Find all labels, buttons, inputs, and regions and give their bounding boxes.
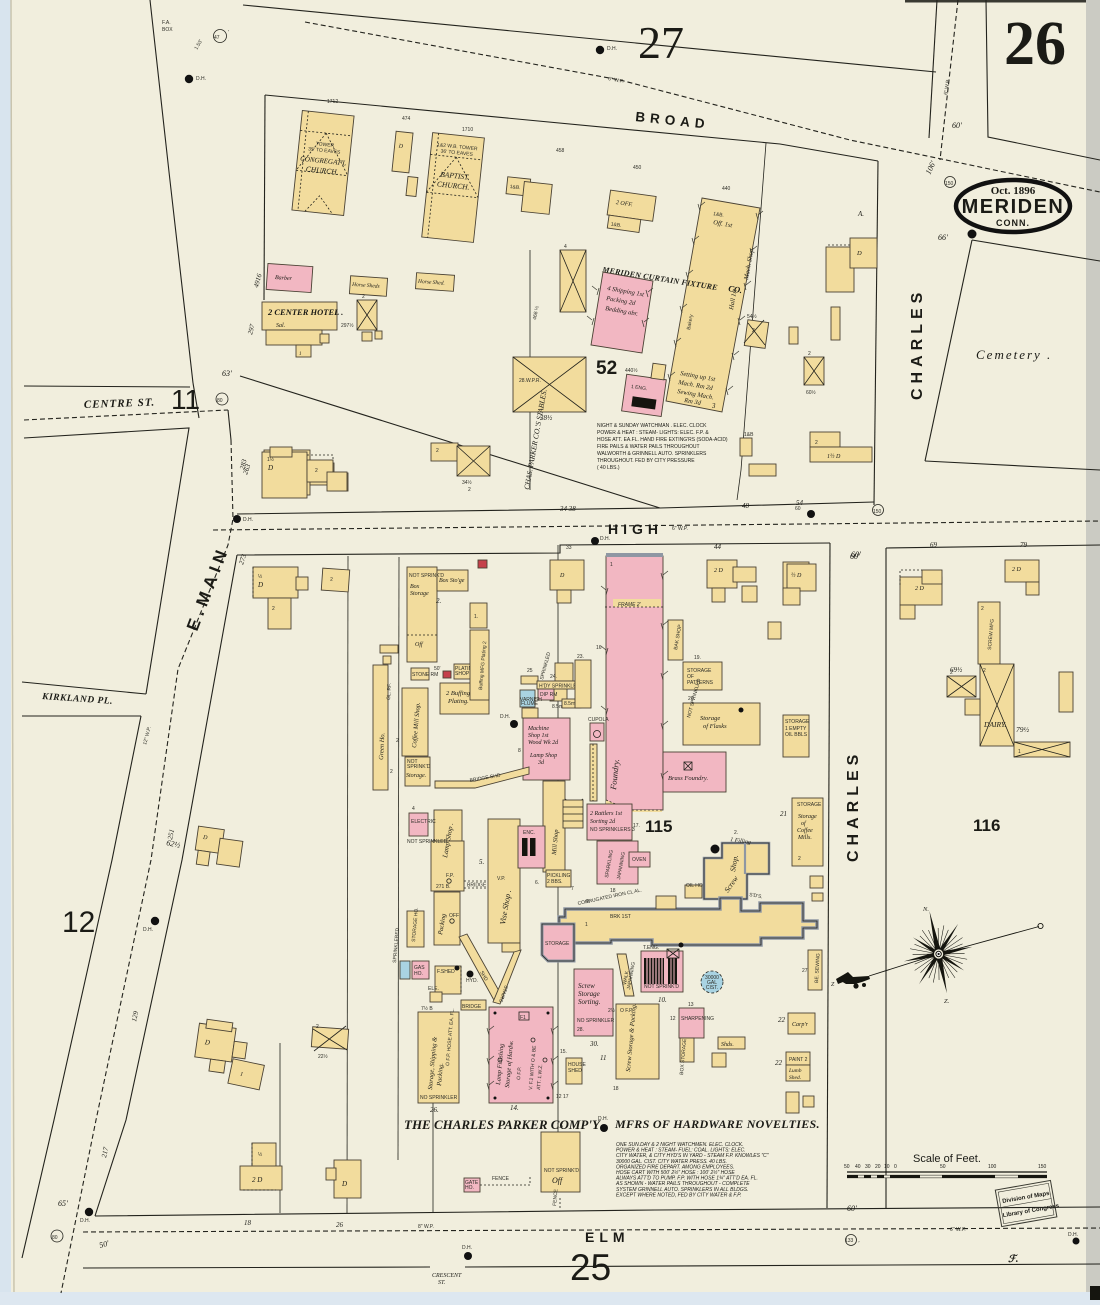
- svg-text:3d: 3d: [537, 760, 545, 766]
- svg-text:THROUGHOUT. FED BY CITY PRESSU: THROUGHOUT. FED BY CITY PRESSURE: [597, 458, 695, 464]
- svg-text:297½: 297½: [341, 322, 354, 329]
- svg-text:D.H.: D.H.: [607, 46, 617, 52]
- svg-text:18: 18: [244, 1219, 252, 1227]
- svg-text:19.: 19.: [694, 655, 701, 661]
- svg-text:Lumb: Lumb: [788, 1068, 802, 1074]
- svg-text:SHARPENING: SHARPENING: [681, 1016, 714, 1022]
- svg-text:Cemetery .: Cemetery .: [976, 347, 1052, 362]
- svg-text:50': 50': [434, 666, 441, 672]
- svg-text:FIRE PAILS & WATER PAILS THROU: FIRE PAILS & WATER PAILS THROUGHOUT: [597, 444, 700, 450]
- svg-text:1: 1: [610, 562, 613, 568]
- svg-text:2 Rattlers 1st: 2 Rattlers 1st: [590, 811, 622, 817]
- svg-text:D.H.: D.H.: [462, 1245, 472, 1251]
- svg-text:14.: 14.: [510, 1104, 519, 1112]
- svg-text:Storage: Storage: [410, 591, 429, 597]
- svg-text:1: 1: [1018, 749, 1021, 755]
- svg-text:Lamp Shop: Lamp Shop: [529, 753, 557, 759]
- svg-text:52: 52: [596, 358, 617, 379]
- svg-text:8: 8: [518, 748, 521, 754]
- svg-text:DIP RM: DIP RM: [540, 692, 557, 698]
- svg-text:44: 44: [714, 543, 722, 551]
- svg-text:Storage: Storage: [700, 715, 720, 722]
- svg-text:A.: A.: [857, 210, 864, 218]
- svg-text:21: 21: [780, 810, 787, 818]
- svg-text:MFRS OF HARDWARE NOVELTIES.: MFRS OF HARDWARE NOVELTIES.: [614, 1117, 820, 1131]
- svg-text:47: 47: [214, 35, 220, 41]
- svg-text:Storage: Storage: [578, 990, 600, 998]
- svg-text:BRIDGE: BRIDGE: [467, 883, 487, 889]
- svg-text:25: 25: [570, 1247, 611, 1288]
- svg-text:F.SHED: F.SHED: [437, 969, 455, 975]
- svg-text:D: D: [257, 581, 263, 589]
- svg-text:HO.: HO.: [414, 971, 423, 977]
- svg-text:0: 0: [894, 1164, 897, 1170]
- svg-text:40: 40: [855, 1164, 861, 1170]
- svg-text:CIST.: CIST.: [706, 985, 718, 991]
- svg-text:8.5m: 8.5m: [552, 704, 563, 710]
- svg-text:1712: 1712: [327, 99, 338, 105]
- svg-text:16: 16: [596, 645, 602, 651]
- svg-text:EXCEPT WHERE NOTED, FED BY CIT: EXCEPT WHERE NOTED, FED BY CITY WATER & …: [616, 1192, 741, 1198]
- svg-text:SPRINK'D: SPRINK'D: [407, 764, 431, 770]
- svg-text:Wood Wk 2d: Wood Wk 2d: [528, 740, 559, 746]
- svg-text:( 40 LBS.): ( 40 LBS.): [597, 465, 620, 471]
- svg-text:33: 33: [566, 545, 572, 551]
- svg-text:HIGH: HIGH: [608, 521, 663, 537]
- svg-text:30: 30: [865, 1164, 871, 1170]
- svg-text:D.H.: D.H.: [80, 1218, 90, 1224]
- svg-text:Shop 1st: Shop 1st: [528, 733, 549, 739]
- svg-text:7: 7: [571, 886, 574, 892]
- svg-text:11: 11: [171, 384, 200, 415]
- svg-text:15.: 15.: [560, 1049, 567, 1055]
- svg-text:Box: Box: [410, 584, 420, 590]
- svg-text:2½: 2½: [608, 1007, 616, 1014]
- svg-text:1: 1: [299, 352, 302, 357]
- svg-text:CONN.: CONN.: [996, 218, 1030, 228]
- svg-text:2: 2: [272, 606, 275, 612]
- svg-text:F1: F1: [520, 1015, 526, 1021]
- svg-text:Sal.: Sal.: [276, 323, 285, 329]
- svg-text:2 D: 2 D: [915, 586, 925, 592]
- svg-text:440: 440: [722, 186, 731, 192]
- svg-text:458: 458: [556, 148, 565, 154]
- svg-text:NO SPRINKLER: NO SPRINKLER: [577, 1018, 615, 1024]
- svg-text:D: D: [203, 1038, 210, 1047]
- svg-text:25: 25: [527, 668, 533, 674]
- svg-text:2: 2: [981, 606, 984, 612]
- svg-text:10: 10: [884, 1164, 890, 1170]
- svg-text:D.H.: D.H.: [243, 517, 253, 523]
- svg-text:150: 150: [873, 509, 882, 515]
- svg-text:23.: 23.: [577, 654, 584, 660]
- svg-text:': ': [228, 30, 229, 36]
- svg-text:Brass Foundry.: Brass Foundry.: [668, 775, 708, 782]
- svg-text:28.W.P.R.: 28.W.P.R.: [519, 378, 541, 384]
- svg-text:Green Ho.: Green Ho.: [378, 732, 386, 760]
- svg-text:FENCE: FENCE: [492, 1176, 510, 1182]
- svg-text:20: 20: [875, 1164, 881, 1170]
- svg-text:D: D: [267, 464, 273, 472]
- svg-text:2: 2: [316, 1024, 319, 1030]
- svg-text:7½ B: 7½ B: [421, 1005, 433, 1012]
- svg-text:BRIDGE: BRIDGE: [462, 1004, 482, 1010]
- svg-text:65': 65': [58, 1199, 68, 1208]
- svg-text:T.ENG.: T.ENG.: [643, 945, 659, 951]
- svg-text:26: 26: [1004, 10, 1066, 78]
- svg-text:17.: 17.: [633, 823, 640, 829]
- svg-text:NO SPRINKLER: NO SPRINKLER: [420, 1095, 458, 1101]
- svg-text:60½: 60½: [806, 389, 817, 396]
- svg-text:D.H.: D.H.: [500, 714, 510, 720]
- svg-text:15: 15: [556, 1122, 564, 1130]
- svg-text:1½: 1½: [267, 456, 275, 463]
- svg-text:FRAME 2': FRAME 2': [618, 602, 642, 608]
- svg-text:O F.P.: O F.P.: [620, 1008, 633, 1014]
- svg-text:150: 150: [945, 181, 954, 187]
- svg-text:2 D: 2 D: [252, 1176, 262, 1184]
- svg-text:22½: 22½: [318, 1053, 329, 1060]
- svg-text:8" W.P.: 8" W.P.: [418, 1224, 434, 1230]
- svg-text:D.H.: D.H.: [143, 927, 153, 933]
- svg-text:2 D: 2 D: [1012, 567, 1022, 573]
- svg-text:116: 116: [973, 816, 1000, 835]
- svg-text:O F.P.: O F.P.: [516, 1066, 523, 1080]
- svg-text:4: 4: [412, 806, 415, 812]
- svg-text:12: 12: [670, 1016, 676, 1022]
- svg-text:133: 133: [845, 1238, 854, 1244]
- svg-text:2: 2: [396, 738, 399, 744]
- svg-text:1.: 1.: [474, 614, 478, 620]
- svg-text:V.P.: V.P.: [497, 876, 505, 882]
- svg-text:Plating.: Plating.: [447, 698, 469, 705]
- svg-text:6" W.P.: 6" W.P.: [950, 1227, 966, 1233]
- svg-text:STORAGE: STORAGE: [797, 802, 822, 808]
- svg-text:NO SPRINKLERS 3: NO SPRINKLERS 3: [590, 827, 635, 833]
- svg-text:NIGHT & SUNDAY WATCHMAN . ELEC: NIGHT & SUNDAY WATCHMAN . ELEC. CLOCK: [597, 423, 707, 429]
- svg-text:450: 450: [633, 165, 642, 171]
- svg-text:F.A.: F.A.: [162, 20, 171, 26]
- svg-text:HO.: HO.: [465, 1185, 474, 1191]
- svg-text:ENC.: ENC.: [523, 830, 535, 836]
- svg-text:2 CENTER HOTEL .: 2 CENTER HOTEL .: [267, 307, 343, 317]
- svg-text:of Flasks: of Flasks: [703, 723, 727, 730]
- svg-text:4: 4: [564, 244, 567, 250]
- svg-text:27: 27: [638, 17, 684, 68]
- svg-text:2: 2: [815, 440, 818, 446]
- svg-text:26: 26: [336, 1221, 344, 1229]
- svg-text:CENTRE ST.: CENTRE ST.: [84, 397, 156, 411]
- svg-text:NOT SPRINK'D: NOT SPRINK'D: [644, 984, 679, 990]
- svg-text:Coffee: Coffee: [797, 827, 813, 834]
- svg-text:11: 11: [600, 1054, 606, 1062]
- svg-text:1&B: 1&B: [744, 432, 754, 438]
- svg-text:6.: 6.: [535, 880, 539, 886]
- svg-text:66': 66': [938, 233, 948, 242]
- svg-text:Mills.: Mills.: [797, 835, 812, 841]
- svg-text:D.H.: D.H.: [1068, 1232, 1078, 1238]
- svg-text:STORAGE: STORAGE: [545, 941, 570, 947]
- svg-text:48: 48: [742, 502, 750, 510]
- svg-text:1710: 1710: [462, 127, 473, 133]
- svg-text:OIL BBLS: OIL BBLS: [785, 732, 808, 738]
- svg-text:HOSE ATT. EA.FL. HAND FIRE EXT: HOSE ATT. EA.FL. HAND FIRE EXTING'RS (SO…: [597, 437, 728, 443]
- svg-text:28.: 28.: [577, 1027, 584, 1033]
- svg-text:5.: 5.: [479, 858, 485, 866]
- svg-text:Z.: Z.: [944, 998, 950, 1005]
- svg-text:Barber: Barber: [275, 275, 293, 282]
- svg-text:CRESCENT: CRESCENT: [432, 1273, 462, 1279]
- svg-text:D: D: [856, 250, 862, 257]
- svg-text:474: 474: [402, 116, 411, 122]
- svg-text:D: D: [341, 1180, 347, 1188]
- svg-text:60': 60': [851, 550, 861, 559]
- svg-text:Machine: Machine: [527, 726, 549, 732]
- svg-text:24.: 24.: [550, 674, 557, 680]
- svg-text:BRK 1ST: BRK 1ST: [610, 914, 631, 920]
- svg-text:13: 13: [688, 1002, 694, 1008]
- svg-text:FLUME: FLUME: [521, 701, 539, 707]
- svg-text:Storage.: Storage.: [406, 773, 426, 779]
- svg-text:80: 80: [217, 398, 223, 404]
- svg-text:2: 2: [315, 468, 318, 474]
- svg-text:Sorting.: Sorting.: [578, 998, 601, 1006]
- svg-text:Box Sto'ge: Box Sto'ge: [439, 578, 465, 584]
- svg-text:12 17: 12 17: [556, 1094, 569, 1100]
- svg-text:Storage: Storage: [798, 814, 817, 820]
- svg-text:BOX: BOX: [162, 27, 173, 33]
- svg-text:1&B.: 1&B.: [509, 184, 520, 191]
- svg-text:10.: 10.: [658, 996, 667, 1004]
- svg-text:115: 115: [645, 817, 672, 836]
- svg-text:150: 150: [1038, 1164, 1047, 1170]
- svg-text:50: 50: [940, 1164, 946, 1170]
- svg-text:22: 22: [778, 1016, 786, 1024]
- svg-text:100: 100: [988, 1164, 997, 1170]
- svg-text:20.: 20.: [688, 696, 695, 702]
- svg-text:2: 2: [808, 351, 811, 357]
- svg-text:ELM: ELM: [585, 1229, 630, 1245]
- svg-text:MERIDEN: MERIDEN: [962, 196, 1065, 218]
- svg-text:CHARLES: CHARLES: [845, 750, 862, 862]
- svg-text:9.: 9.: [586, 899, 590, 905]
- svg-text:OFF: OFF: [449, 913, 459, 919]
- svg-text:D: D: [559, 573, 565, 579]
- svg-text:22: 22: [775, 1059, 783, 1067]
- svg-text:54½: 54½: [747, 313, 758, 320]
- svg-text:ELE.: ELE.: [428, 986, 439, 992]
- svg-text:ℱ.: ℱ.: [1008, 1254, 1018, 1265]
- svg-text:8.5m: 8.5m: [564, 701, 575, 707]
- svg-text:2 D: 2 D: [714, 568, 724, 574]
- svg-text:34 38: 34 38: [559, 505, 576, 513]
- svg-text:2: 2: [798, 856, 801, 862]
- svg-text:54: 54: [796, 499, 804, 507]
- svg-text:H'DY SPRINKLED: H'DY SPRINKLED: [539, 684, 581, 690]
- svg-text:Sorting 2d: Sorting 2d: [590, 819, 616, 825]
- svg-text:2: 2: [983, 668, 986, 674]
- svg-text:ELECTRIC: ELECTRIC: [411, 819, 436, 825]
- svg-text:Off: Off: [552, 1176, 564, 1185]
- svg-text:30.: 30.: [589, 1040, 599, 1048]
- svg-text:63': 63': [222, 369, 232, 378]
- svg-text:12: 12: [62, 906, 95, 939]
- svg-text:18: 18: [613, 1086, 619, 1092]
- svg-text:34½: 34½: [462, 479, 473, 486]
- svg-text:D.H.: D.H.: [598, 1116, 608, 1122]
- svg-text:OIL HO: OIL HO: [686, 883, 703, 889]
- svg-text:DAIRY.: DAIRY.: [983, 720, 1006, 729]
- svg-text:HYD.: HYD.: [466, 978, 478, 984]
- svg-text:27: 27: [802, 968, 808, 974]
- svg-text:2.: 2.: [734, 830, 738, 836]
- svg-text:SHED: SHED: [568, 1068, 582, 1074]
- svg-text:2: 2: [390, 769, 393, 775]
- svg-text:PAINT 2: PAINT 2: [789, 1057, 808, 1063]
- svg-text:POWER & HEAT : STEAM- LIGHTS:: POWER & HEAT : STEAM- LIGHTS: ELEC. F.P.…: [597, 430, 709, 436]
- svg-text:2: 2: [468, 487, 471, 493]
- svg-text:Shed.: Shed.: [789, 1075, 801, 1081]
- svg-text:Carp'r: Carp'r: [792, 1022, 809, 1028]
- svg-text:2: 2: [436, 448, 439, 454]
- svg-text:THE CHARLES PARKER COMP'Y: THE CHARLES PARKER COMP'Y: [404, 1117, 601, 1132]
- svg-text:440½: 440½: [625, 367, 638, 374]
- svg-text:N.: N.: [922, 906, 929, 913]
- svg-text:79½: 79½: [1016, 725, 1030, 734]
- svg-text:GL. RF.: GL. RF.: [386, 683, 393, 700]
- svg-text:3: 3: [711, 402, 716, 410]
- svg-text:6" W.P.: 6" W.P.: [672, 526, 688, 532]
- svg-text:2 Buffing.: 2 Buffing.: [446, 690, 472, 697]
- svg-text:2: 2: [752, 328, 755, 334]
- svg-text:WALWORTH & GRINNELL AUTO. SPRI: WALWORTH & GRINNELL AUTO. SPRINKLERS: [597, 451, 707, 457]
- svg-text:2.: 2.: [436, 597, 442, 605]
- svg-text:26.: 26.: [430, 1106, 439, 1114]
- svg-text:SHOP: SHOP: [455, 671, 470, 677]
- svg-text:80: 80: [52, 1235, 58, 1241]
- svg-text:79: 79: [1020, 541, 1028, 549]
- svg-text:OVEN: OVEN: [632, 857, 647, 863]
- svg-text:69: 69: [930, 541, 938, 549]
- svg-text:½ D: ½ D: [791, 572, 802, 579]
- svg-text:D.H.: D.H.: [196, 76, 206, 82]
- svg-text:60': 60': [952, 121, 962, 130]
- svg-text:271 B.: 271 B.: [436, 884, 450, 890]
- svg-text:NOT SPRINKLED: NOT SPRINKLED: [407, 839, 448, 845]
- svg-text:STONE RM: STONE RM: [412, 672, 438, 678]
- svg-text:1½ D: 1½ D: [827, 453, 841, 460]
- svg-text:2 BBS.: 2 BBS.: [547, 879, 563, 885]
- svg-text:Off: Off: [415, 641, 424, 648]
- svg-text:Screw: Screw: [578, 982, 595, 990]
- svg-text:NOT SPRINK'D: NOT SPRINK'D: [544, 1168, 579, 1174]
- svg-text:50: 50: [844, 1164, 850, 1170]
- svg-text:2: 2: [362, 294, 365, 300]
- svg-text:F.P.: F.P.: [446, 873, 454, 879]
- svg-text:Shds.: Shds.: [721, 1042, 734, 1048]
- svg-text:60': 60': [847, 1204, 857, 1213]
- svg-text:CUPOLA: CUPOLA: [588, 717, 609, 723]
- svg-text:CHARLES: CHARLES: [909, 288, 926, 400]
- svg-text:Scale of Feet.: Scale of Feet.: [913, 1153, 981, 1165]
- svg-text:ST.: ST.: [438, 1280, 445, 1286]
- svg-text:69½: 69½: [950, 666, 963, 674]
- svg-text:STORAGE: STORAGE: [785, 719, 810, 725]
- svg-text:1: 1: [585, 922, 588, 928]
